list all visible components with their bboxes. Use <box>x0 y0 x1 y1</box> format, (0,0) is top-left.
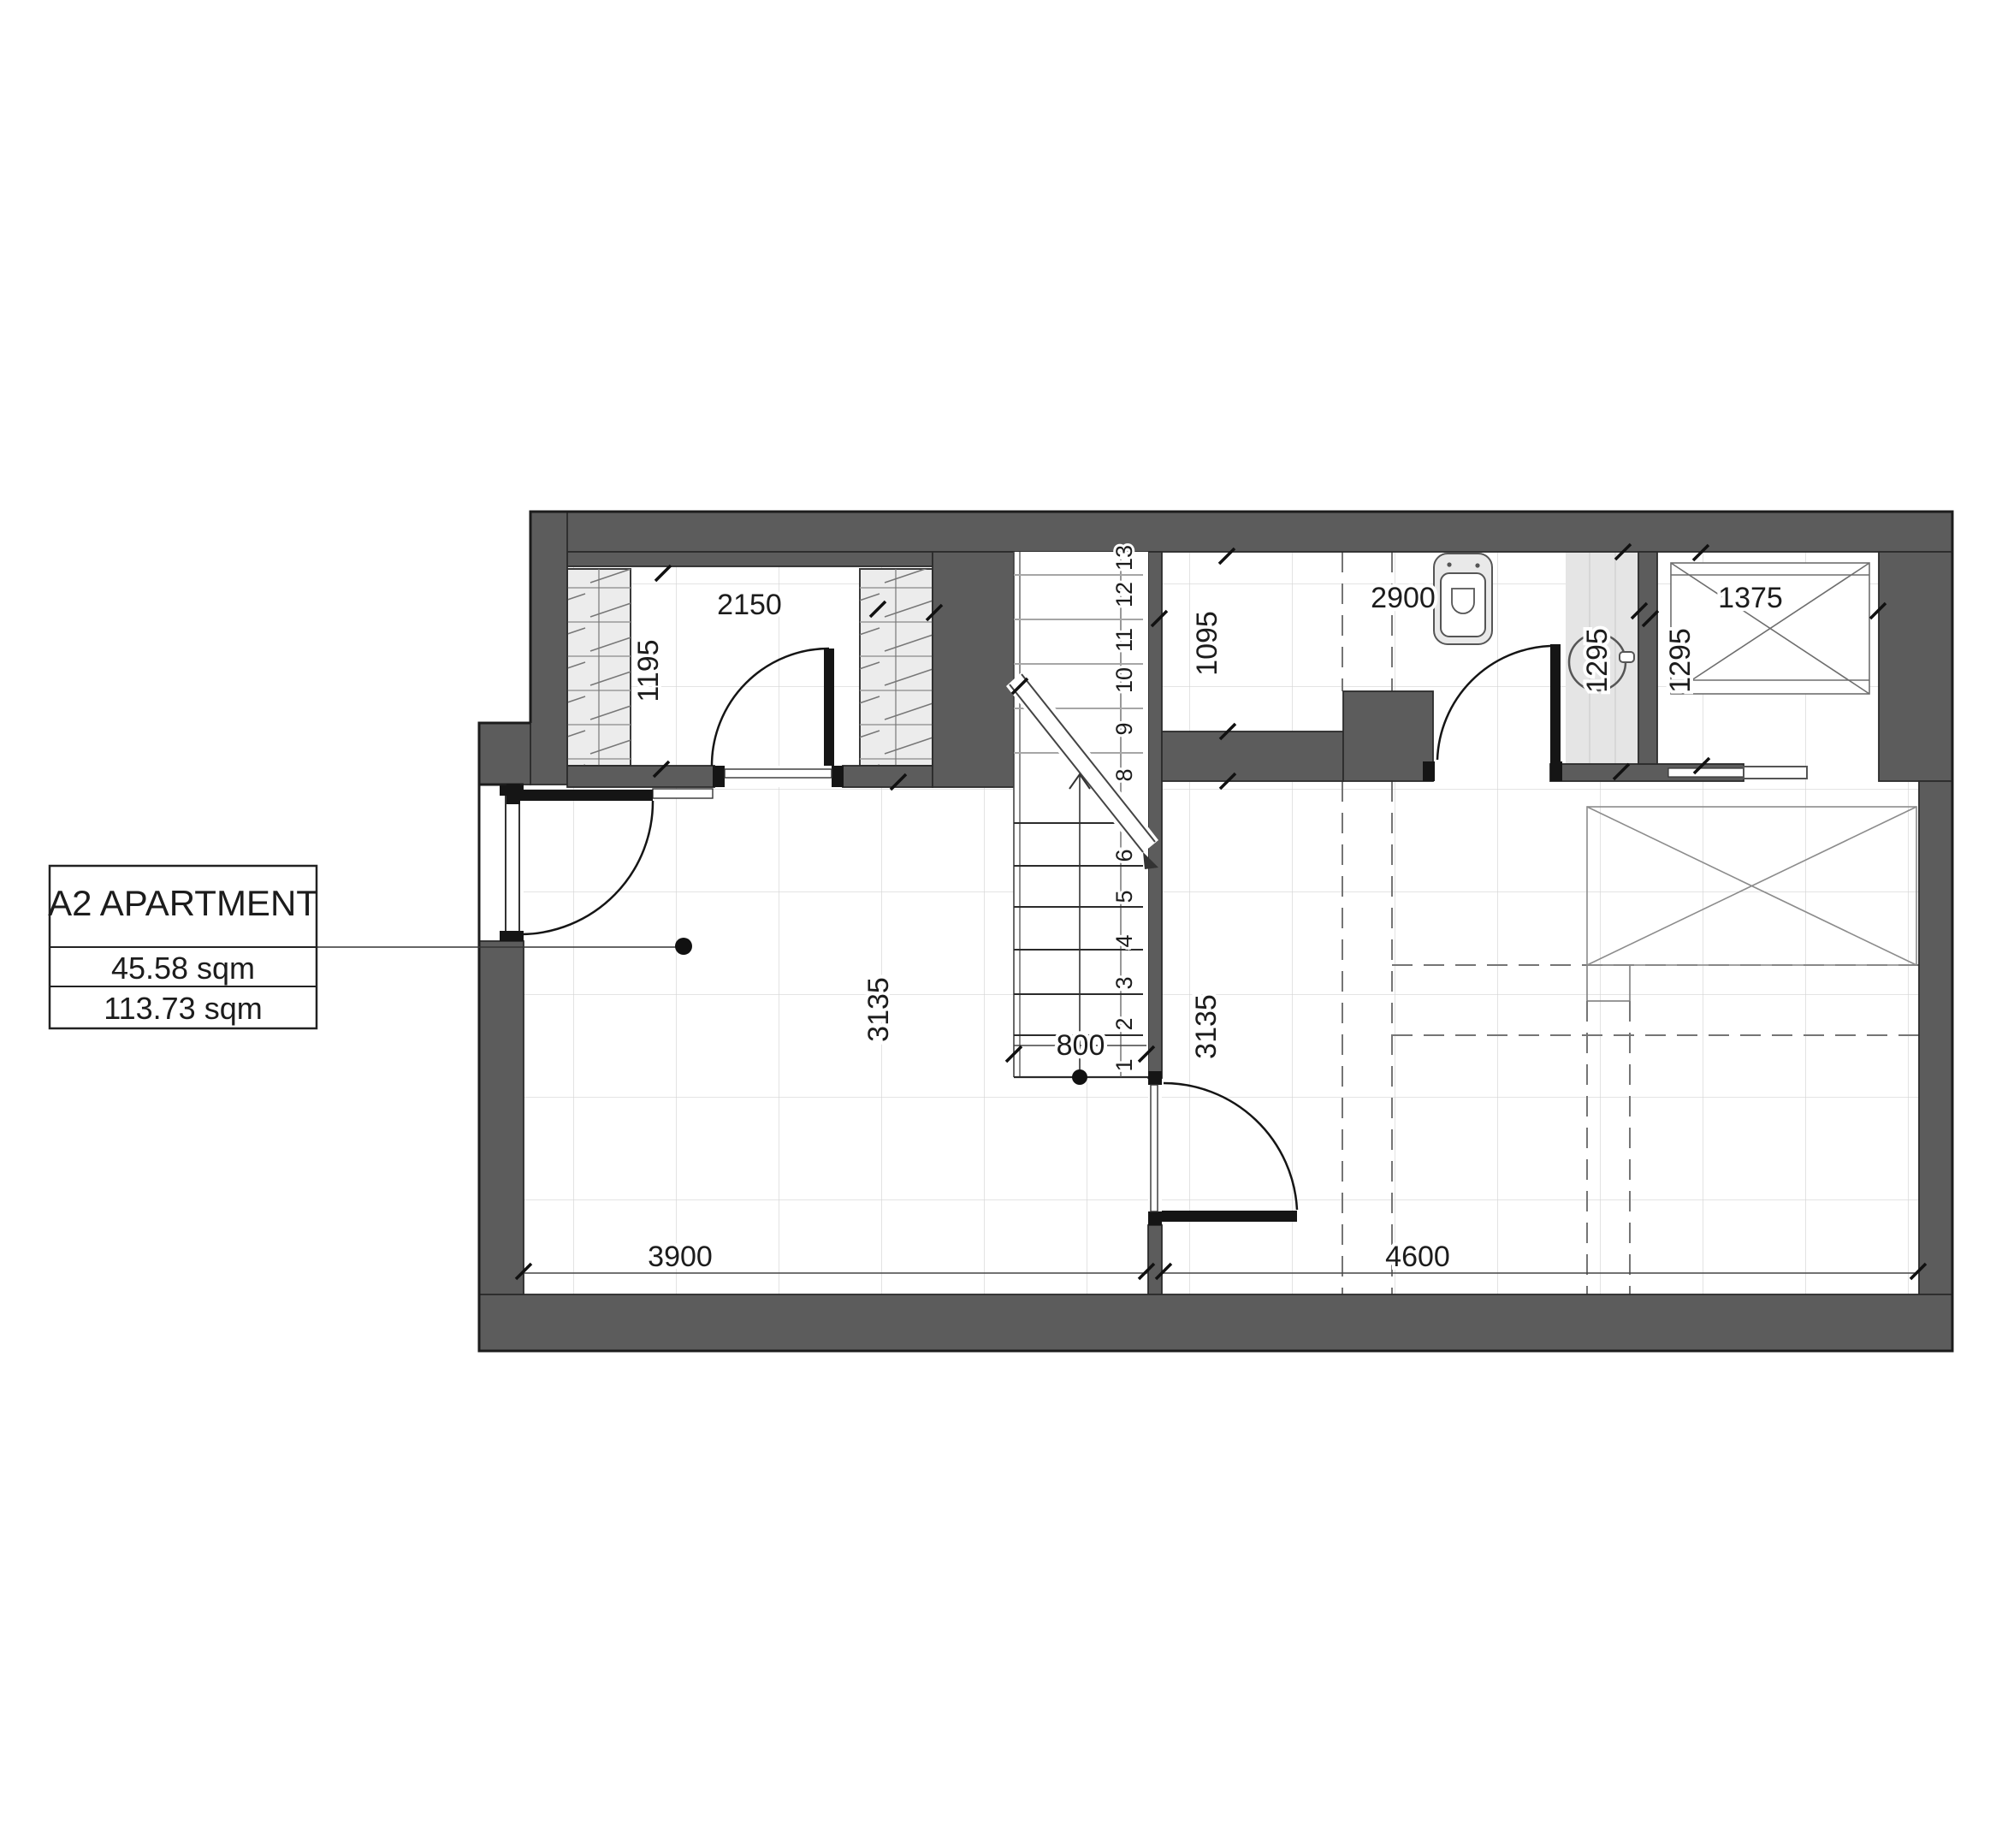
stair-step-number: 11 <box>1111 628 1137 652</box>
bath-door-leaf <box>1550 644 1561 764</box>
stair-step-number: 3 <box>1111 976 1137 989</box>
toilet-bowl-inner <box>1452 589 1474 613</box>
sliding-panel <box>1744 767 1807 779</box>
closet-door-sill <box>725 769 832 778</box>
stair-step-number: 9 <box>1111 722 1137 735</box>
room-door-sill <box>1151 1085 1158 1211</box>
closet-door-jamb-left <box>713 766 725 787</box>
staircase: 1 2 3 4 5 6 8 9 10 11 12 13 <box>1006 545 1158 1085</box>
toilet-bolt <box>1447 562 1451 566</box>
floor-plan-page: 1 2 3 4 5 6 8 9 10 11 12 13 <box>0 0 2002 1848</box>
stair-step-number: 2 <box>1111 1017 1137 1030</box>
dim-closet-width: 2150 <box>717 589 782 621</box>
stair-step-number: 1 <box>1111 1058 1137 1071</box>
closet-door-jamb-right <box>832 766 844 787</box>
pocket-slot <box>1668 768 1744 777</box>
wall-shower-right <box>1638 552 1657 764</box>
washbasin-tap-icon <box>1620 652 1634 662</box>
dim-bath-width: 2900 <box>1371 582 1436 614</box>
leader-dot <box>675 938 692 955</box>
wall-stairs-right <box>1148 552 1162 1078</box>
bath-door-jamb-right <box>1550 761 1562 781</box>
bath-door-jamb-left <box>1423 761 1435 781</box>
wall-top-closet <box>567 552 933 566</box>
wall-bath-step <box>1343 691 1433 781</box>
dim-closet-depth: 1195 <box>632 639 665 702</box>
stair-step-number: 5 <box>1111 890 1137 903</box>
room-door-jamb-top <box>1148 1071 1162 1085</box>
stair-step-number: 12 <box>1111 582 1137 607</box>
dim-stair-width: 800 <box>1057 1029 1105 1062</box>
room-door-jamb-bottom <box>1148 1211 1162 1225</box>
wall-left-upper <box>530 512 567 785</box>
wall-top <box>530 512 1952 552</box>
wall-right-upper <box>1879 552 1952 781</box>
stair-step-number: 4 <box>1111 934 1137 947</box>
toilet-bolt <box>1475 563 1479 567</box>
window-cap-bottom <box>500 931 524 941</box>
entrance-door-jamb <box>506 784 520 804</box>
dim-shower-depth: 1295 <box>1581 628 1614 693</box>
apartment-area-1: 45.58 sqm <box>111 951 255 986</box>
wall-closet-bottom-left <box>567 766 714 787</box>
stair-step-number: 8 <box>1111 768 1137 781</box>
dim-left-room-width: 3900 <box>648 1241 713 1273</box>
stair-step-number: 13 <box>1111 545 1137 571</box>
wall-stairs-right-lower <box>1148 1225 1162 1294</box>
apartment-label-box: A2 APARTMENT 45.58 sqm 113.73 sqm <box>48 866 318 1028</box>
dim-bath-left-depth: 1095 <box>1191 611 1223 676</box>
wall-right-lower <box>1919 781 1952 1294</box>
dim-shaft-width: 1375 <box>1718 582 1783 614</box>
wall-bottom <box>479 1294 1952 1351</box>
dim-left-room-depth: 3135 <box>862 977 895 1042</box>
stair-step-number: 10 <box>1111 667 1137 693</box>
dim-right-room-width: 4600 <box>1385 1241 1450 1273</box>
window-glazing-bg <box>501 796 524 931</box>
wall-closet-stairs <box>933 552 1014 787</box>
wall-left-lower <box>479 941 524 1294</box>
apartment-area-2: 113.73 sqm <box>104 991 262 1026</box>
wall-left-step <box>479 723 530 785</box>
entrance-door-leaf <box>518 790 653 801</box>
wall-closet-bottom-right <box>843 766 933 787</box>
floor-plan-drawing: 1 2 3 4 5 6 8 9 10 11 12 13 <box>0 0 2002 1848</box>
stair-start-dot <box>1072 1069 1087 1085</box>
window-left <box>500 785 524 941</box>
stair-step-number: 6 <box>1111 849 1137 862</box>
wall-bath-bottom-west <box>1162 731 1343 781</box>
dim-right-room-depth: 3135 <box>1190 994 1223 1059</box>
entrance-threshold <box>653 789 713 798</box>
pocket-sliding-door <box>1668 767 1807 779</box>
closet-door-leaf <box>824 649 834 766</box>
room-door-leaf <box>1162 1211 1297 1222</box>
dim-niche-depth: 1295 <box>1664 628 1697 693</box>
toilet-icon <box>1434 554 1492 644</box>
apartment-title: A2 APARTMENT <box>48 883 318 923</box>
